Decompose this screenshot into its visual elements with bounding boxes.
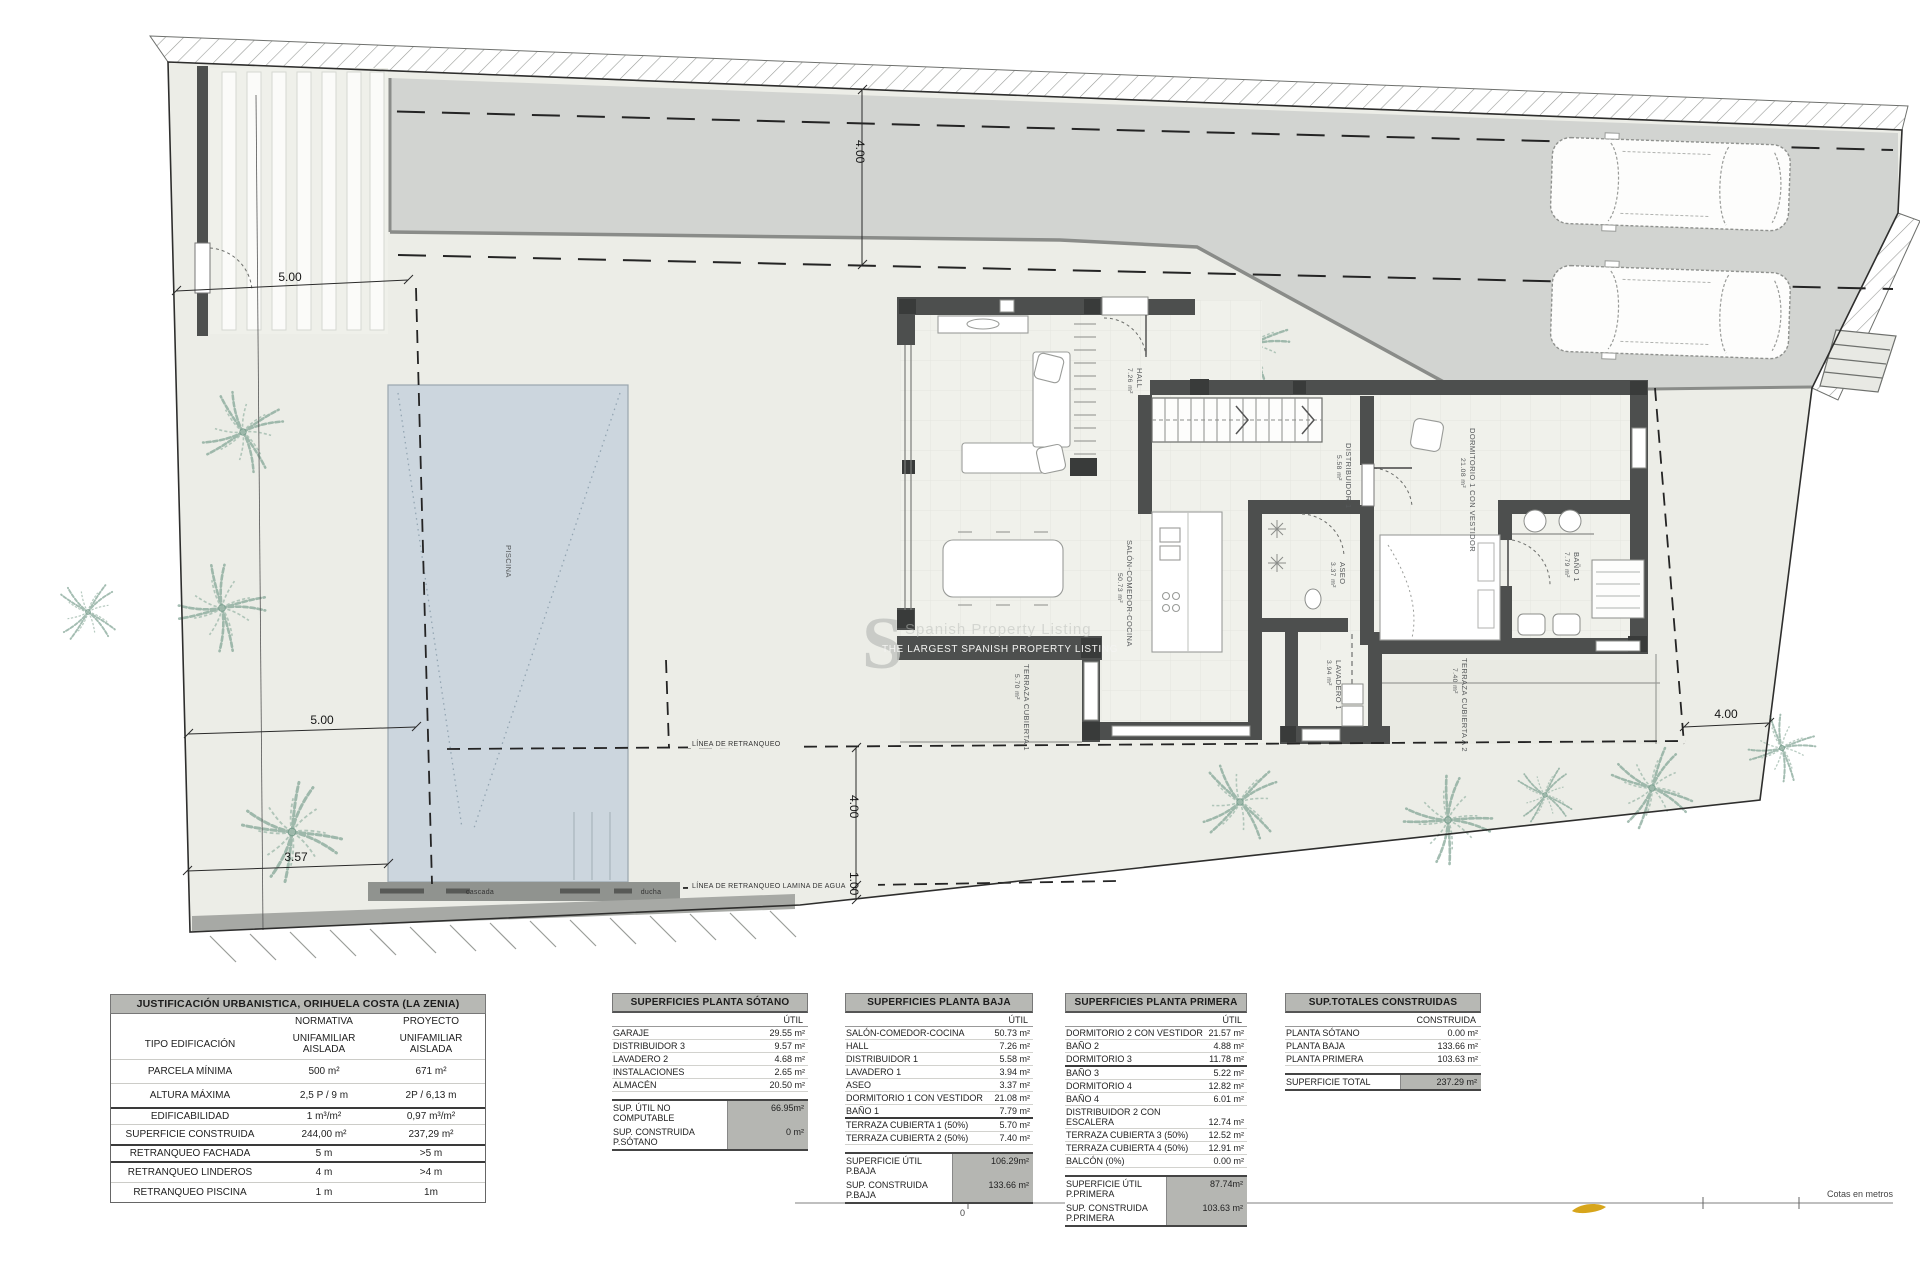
armchair (1033, 352, 1065, 384)
parked-car-1 (1550, 131, 1791, 237)
table-row: RETRANQUEO PISCINA 1 m 1m (111, 1183, 485, 1202)
table-row: ALTURA MÁXIMA 2,5 P / 9 m 2P / 6,13 m (111, 1084, 485, 1109)
palm-tree (48, 572, 129, 653)
col-header-util: ÚTIL (845, 1013, 1033, 1027)
table-totals: SUP. ÚTIL NO COMPUTABLE66.95m² SUP. CONS… (612, 1099, 808, 1151)
table-row: RETRANQUEO FACHADA 5 m >5 m (111, 1146, 485, 1163)
table-planta-baja: SUPERFICIES PLANTA BAJA ÚTIL SALÓN-COMED… (845, 993, 1033, 1204)
setback-label: LÍNEA DE RETRANQUEO (692, 739, 781, 748)
table-totals: SUPERFICIE ÚTIL P.BAJA106.29m² SUP. CONS… (845, 1152, 1033, 1204)
col-header-util: ÚTIL (612, 1013, 808, 1027)
table-row: PLANTA SÓTANO0.00 m² (1285, 1027, 1481, 1040)
table-row: DORMITORIO 1 CON VESTIDOR21.08 m² (845, 1092, 1033, 1105)
table-row: TERRAZA CUBIERTA 2 (50%)7.40 m² (845, 1132, 1033, 1145)
table-row: DISTRIBUIDOR 15.58 m² (845, 1053, 1033, 1066)
staircase (1152, 398, 1322, 442)
scale-caption: Cotas en metros (1827, 1189, 1894, 1199)
washer (1342, 684, 1363, 704)
setback-water-label: LÍNEA DE RETRANQUEO LAMINA DE AGUA (692, 881, 846, 890)
table-row: DORMITORIO 2 CON VESTIDOR21.57 m² (1065, 1027, 1247, 1040)
total-row: SUP. CONSTRUIDA P.PRIMERA103.63 m² (1065, 1201, 1247, 1225)
watermark-bar-text: THE LARGEST SPANISH PROPERTY LISTING (882, 644, 1118, 655)
armchair (1410, 418, 1445, 453)
logo-swoosh-icon (1572, 1204, 1606, 1213)
table-row: BAÑO 35.22 m² (1065, 1067, 1247, 1080)
total-row: SUPERFICIE ÚTIL P.PRIMERA87.74m² (1065, 1177, 1247, 1201)
total-row: SUP. CONSTRUIDA P.BAJA133.66 m² (845, 1178, 1033, 1202)
table-row: SUPERFICIE CONSTRUIDA 244,00 m² 237,29 m… (111, 1125, 485, 1146)
deck-label-cascada: cascada (466, 889, 494, 896)
table-row: BALCÓN (0%)0.00 m² (1065, 1155, 1247, 1168)
table-row: EDIFICABILIDAD 1 m³/m² 0,97 m³/m² (111, 1109, 485, 1125)
table-title: SUPERFICIES PLANTA SÓTANO (612, 993, 808, 1013)
dim-bot-4: 4.00 (847, 795, 861, 819)
table-row: TERRAZA CUBIERTA 4 (50%)12.91 m² (1065, 1142, 1247, 1155)
total-row: SUPERFICIE TOTAL237.29 m² (1285, 1075, 1481, 1089)
table-row: SALÓN-COMEDOR-COCINA50.73 m² (845, 1027, 1033, 1040)
table-row: LAVADERO 24.68 m² (612, 1053, 808, 1066)
pool-deck: cascada ducha (368, 882, 680, 901)
table-row: TIPO EDIFICACIÓN UNIFAMILIAR AISLADA UNI… (111, 1029, 485, 1060)
table-planta-primera: SUPERFICIES PLANTA PRIMERA ÚTIL DORMITOR… (1065, 993, 1247, 1227)
pool: PISCINA (388, 385, 628, 882)
table-title: SUP.TOTALES CONSTRUIDAS (1285, 993, 1481, 1013)
table-row: HALL7.26 m² (845, 1040, 1033, 1053)
table-row: BAÑO 17.79 m² (845, 1105, 1033, 1119)
total-row: SUP. CONSTRUIDA P.SÓTANO0 m² (612, 1125, 808, 1149)
col-header-construida: CONSTRUIDA (1285, 1013, 1481, 1027)
sofa (962, 443, 1044, 473)
table-totals: SUPERFICIE ÚTIL P.PRIMERA87.74m² SUP. CO… (1065, 1175, 1247, 1227)
table-row: TERRAZA CUBIERTA 1 (50%)5.70 m² (845, 1119, 1033, 1132)
table-row: ALMACÉN20.50 m² (612, 1079, 808, 1092)
table-row: PLANTA PRIMERA103.63 m² (1285, 1053, 1481, 1066)
table-row: DISTRIBUIDOR 2 CON ESCALERA12.74 m² (1065, 1106, 1247, 1129)
table-row: PARCELA MÍNIMA 500 m² 671 m² (111, 1060, 485, 1084)
dim-right-4: 4.00 (1714, 707, 1738, 721)
table-justificacion-urbanistica: JUSTIFICACIÓN URBANISTICA, ORIHUELA COST… (110, 994, 486, 1203)
terrace-2-floor (1382, 660, 1660, 744)
armchair (1036, 444, 1067, 475)
dim-357: 3.57 (284, 850, 308, 864)
table-header-row: NORMATIVA PROYECTO (111, 1014, 485, 1029)
total-row: SUP. ÚTIL NO COMPUTABLE66.95m² (612, 1101, 808, 1125)
table-row: BAÑO 24.88 m² (1065, 1040, 1247, 1053)
dining-table (943, 540, 1063, 597)
toilet (1518, 614, 1545, 635)
watermark-ghost-text: Spanish Property Listing (905, 621, 1092, 638)
table-row: RETRANQUEO LINDEROS 4 m >4 m (111, 1163, 485, 1183)
col-header-util: ÚTIL (1065, 1013, 1247, 1027)
table-title: SUPERFICIES PLANTA PRIMERA (1065, 993, 1247, 1013)
table-row: TERRAZA CUBIERTA 3 (50%)12.52 m² (1065, 1129, 1247, 1142)
table-row: DISTRIBUIDOR 39.57 m² (612, 1040, 808, 1053)
scale-zero: 0 (960, 1208, 965, 1218)
col-header-proyecto: PROYECTO (379, 1014, 483, 1029)
dim-bot-1: 1.00 (847, 872, 861, 896)
deck-label-ducha: ducha (641, 889, 662, 896)
table-row: INSTALACIONES2.65 m² (612, 1066, 808, 1079)
floor-plan-sheet: PISCINA cascada ducha (0, 0, 1920, 1280)
col-header-normativa: NORMATIVA (269, 1014, 379, 1029)
pergola (195, 66, 388, 336)
table-row: PLANTA BAJA133.66 m² (1285, 1040, 1481, 1053)
dryer (1342, 706, 1363, 726)
table-title: JUSTIFICACIÓN URBANISTICA, ORIHUELA COST… (110, 994, 486, 1014)
total-row: SUPERFICIE ÚTIL P.BAJA106.29m² (845, 1154, 1033, 1178)
toilet (1305, 589, 1321, 609)
room-label-piscina: PISCINA (504, 545, 513, 578)
table-title: SUPERFICIES PLANTA BAJA (845, 993, 1033, 1013)
driveway-curb-east (1648, 387, 1812, 389)
table-row: ASEO3.37 m² (845, 1079, 1033, 1092)
kitchen-island (1152, 512, 1222, 652)
parked-car-2 (1550, 259, 1791, 365)
table-row: BAÑO 46.01 m² (1065, 1093, 1247, 1106)
table-totals: SUPERFICIE TOTAL237.29 m² (1285, 1073, 1481, 1091)
pillow (1478, 590, 1494, 628)
dim-top-4: 4.00 (853, 140, 867, 164)
table-planta-sotano: SUPERFICIES PLANTA SÓTANO ÚTIL GARAJE29.… (612, 993, 808, 1151)
table-row: DORMITORIO 412.82 m² (1065, 1080, 1247, 1093)
dim-top-5: 5.00 (278, 270, 302, 284)
bidet (1553, 614, 1580, 635)
table-superficies-totales: SUP.TOTALES CONSTRUIDAS CONSTRUIDA PLANT… (1285, 993, 1481, 1091)
pillow (1478, 543, 1494, 581)
dim-mid-5: 5.00 (310, 713, 334, 727)
terrace-1-floor (900, 660, 1082, 744)
table-row: GARAJE29.55 m² (612, 1027, 808, 1040)
table-row: DORMITORIO 311.78 m² (1065, 1053, 1247, 1067)
table-row: LAVADERO 13.94 m² (845, 1066, 1033, 1079)
